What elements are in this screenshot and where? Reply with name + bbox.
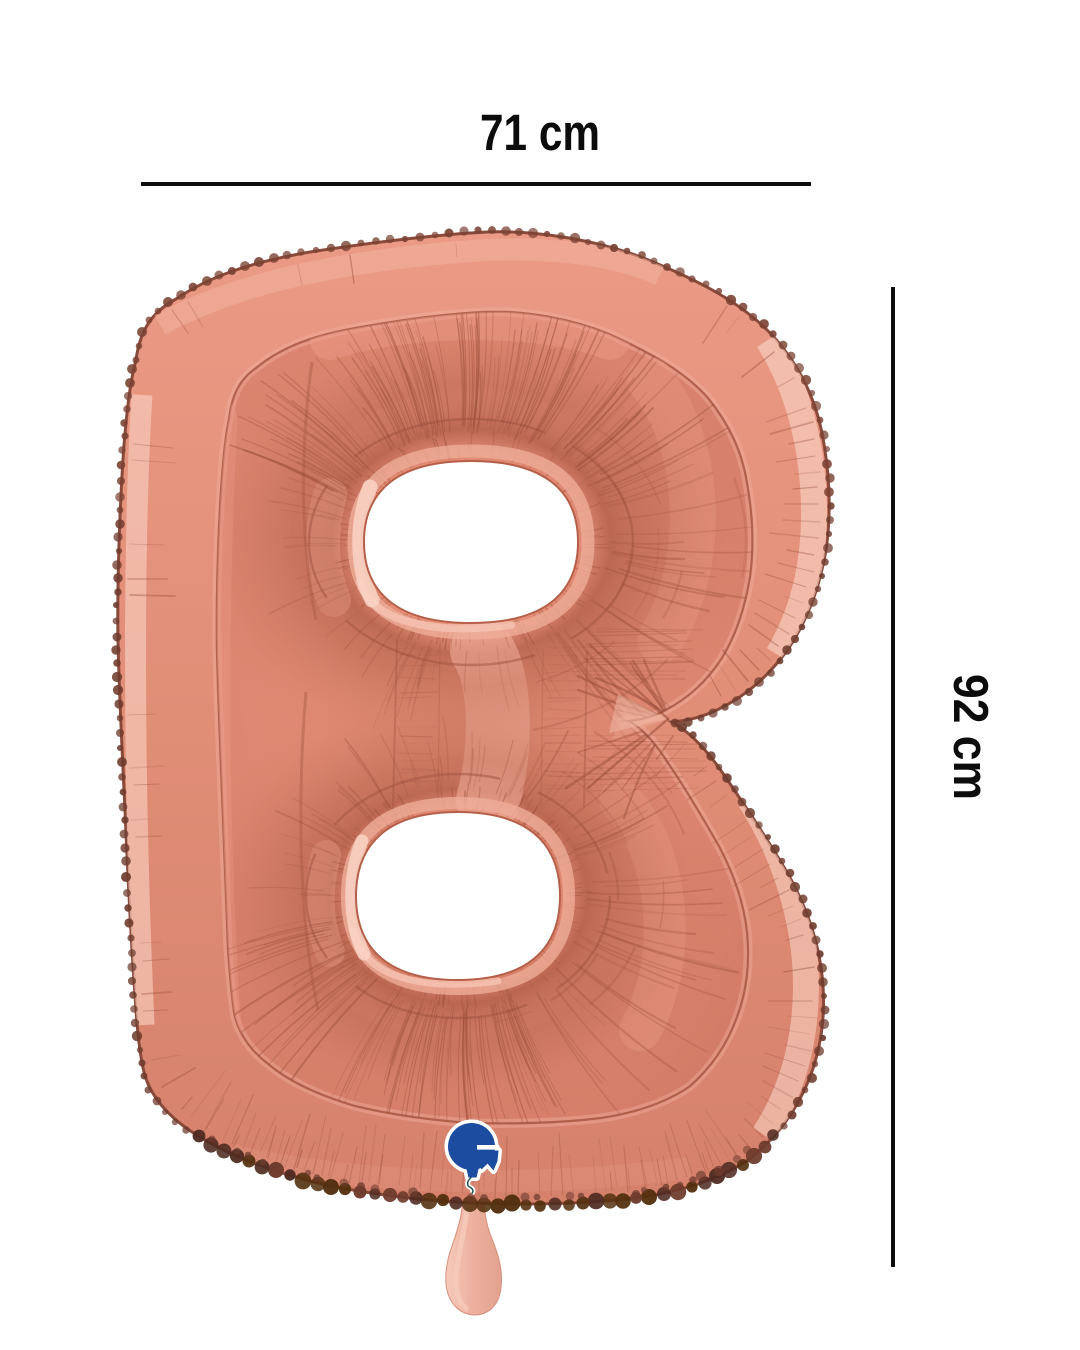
svg-text:71 cm: 71 cm: [480, 104, 600, 161]
svg-text:92 cm: 92 cm: [943, 674, 997, 800]
